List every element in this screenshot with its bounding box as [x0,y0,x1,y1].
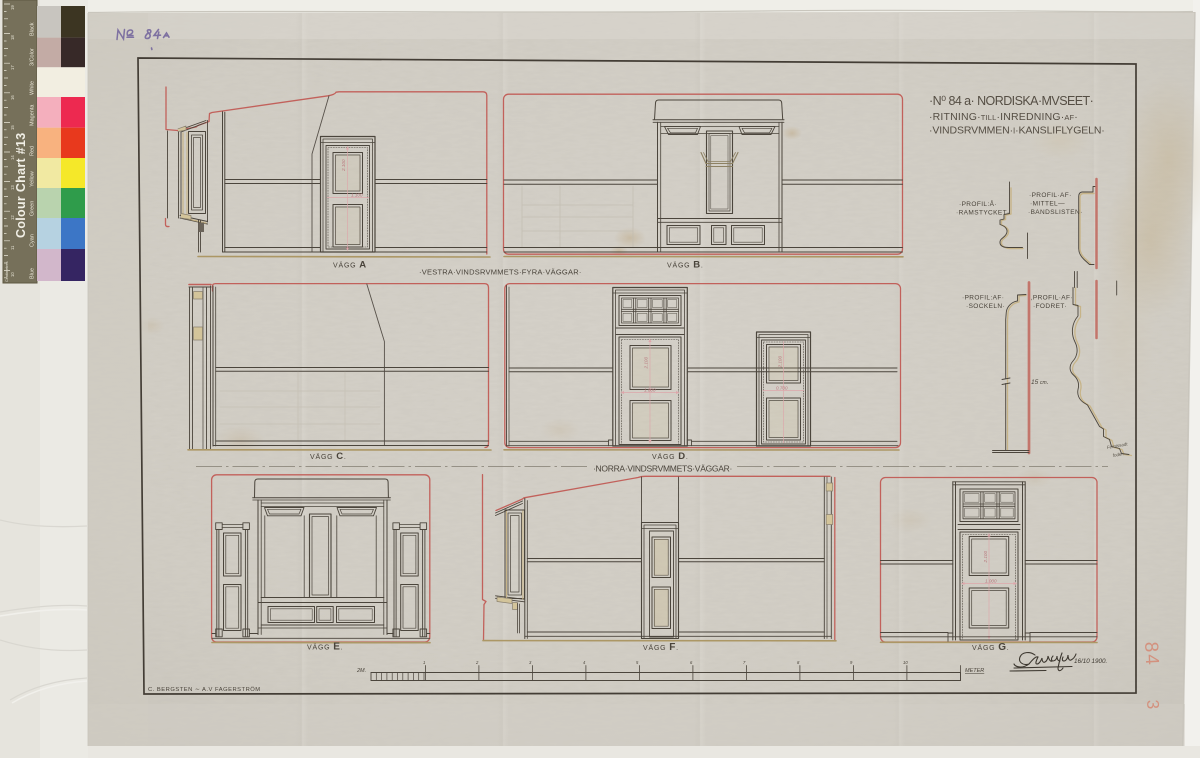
svg-text:Centimetres: Centimetres [5,261,9,282]
svg-text:1.000: 1.000 [985,578,997,583]
svg-text:3/Color: 3/Color [30,48,36,66]
svg-text:19: 19 [10,5,15,10]
svg-text:·MITTEL—: ·MITTEL— [1030,201,1065,208]
svg-text:10: 10 [903,660,908,665]
svg-text:·RAMSTYCKET·: ·RAMSTYCKET· [956,210,1010,217]
svg-text:15: 15 [10,125,15,130]
svg-text:84: 84 [1140,641,1162,667]
svg-text:10: 10 [10,272,15,277]
svg-text:Cyan: Cyan [30,234,36,247]
svg-text:11: 11 [10,245,15,250]
svg-text:Magenta: Magenta [30,104,36,126]
svg-text:Yellow: Yellow [30,171,36,187]
svg-text:0.700: 0.700 [776,385,788,390]
svg-text:Green: Green [30,201,36,216]
svg-text:2.100: 2.100 [778,356,783,369]
svg-text:·SOCKELN·: ·SOCKELN· [966,303,1005,310]
svg-text:C. BERGSTEN ∼ A.V FAGERSTRÖM: C. BERGSTEN ∼ A.V FAGERSTRÖM [148,686,261,693]
svg-text:Colour Chart #13: Colour Chart #13 [14,132,28,238]
svg-text:2.100: 2.100 [341,159,346,172]
svg-text:1.100: 1.100 [351,192,363,197]
svg-text:Red: Red [30,146,36,156]
svg-text:2M.: 2M. [356,668,366,674]
svg-text:·NORRA·VINDSRVMMETS·VÄGGAR·: ·NORRA·VINDSRVMMETS·VÄGGAR· [593,464,733,474]
svg-text:·FODRET·: ·FODRET· [1033,303,1067,310]
svg-text:White: White [30,81,36,95]
svg-text:‚PROFIL·AF·: ‚PROFIL·AF· [1031,295,1073,302]
svg-text:1.000: 1.000 [644,387,656,392]
svg-text:·VINDSRVMMEN·I·KANSLIFLYGELN·: ·VINDSRVMMEN·I·KANSLIFLYGELN· [929,125,1106,137]
svg-text:16: 16 [10,95,15,100]
svg-text:2.100: 2.100 [644,357,649,370]
svg-text:·BANDSLISTEN·: ·BANDSLISTEN· [1028,209,1083,216]
svg-text:·PROFIL:AF·: ·PROFIL:AF· [962,295,1004,302]
svg-text:·VESTRA·VINDSRVMMETS·FYRA·VÄGG: ·VESTRA·VINDSRVMMETS·FYRA·VÄGGAR· [419,268,582,277]
svg-text:1: 1 [423,660,425,665]
svg-text:Black: Black [30,22,36,36]
svg-text:17: 17 [10,65,15,70]
svg-text:3: 3 [1143,699,1162,709]
svg-text:METER: METER [965,668,984,674]
svg-text:2.100: 2.100 [983,551,988,564]
svg-text:·RITNING·TILL·INREDNING·AF·: ·RITNING·TILL·INREDNING·AF· [929,111,1079,123]
svg-text:·PROFIL:Å·: ·PROFIL:Å· [959,199,997,208]
svg-text:16/10 1900.: 16/10 1900. [1074,658,1107,665]
svg-text:Blue: Blue [30,268,36,279]
svg-text:18: 18 [10,35,15,40]
svg-text:·N⁰ 84 a· NORDISKA·MVSEET·: ·N⁰ 84 a· NORDISKA·MVSEET· [929,94,1095,108]
svg-text:·PROFIL·AF·: ·PROFIL·AF· [1029,192,1072,199]
svg-text:15 cm.: 15 cm. [1031,379,1049,386]
